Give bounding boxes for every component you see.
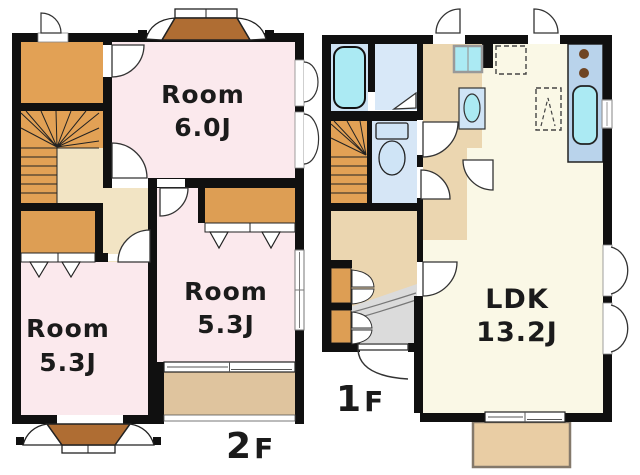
- casement-window-east-1: [611, 247, 628, 294]
- room-left-size: 5.3J: [39, 348, 97, 377]
- shoe-closet-2: [331, 310, 351, 343]
- window-sill: [38, 33, 68, 42]
- floorplan-page: Room 6.0J Room 5.3J Room 5.3J 2F: [0, 0, 640, 475]
- ldk-name: LDK: [485, 284, 549, 315]
- room-6j-name: Room: [161, 80, 245, 109]
- closet-left-room: [21, 211, 95, 253]
- shoe-closet-1: [331, 268, 351, 303]
- balcony-2f: [164, 372, 295, 415]
- bay-roof: [47, 424, 130, 445]
- floor-label-2f: 2F: [226, 426, 273, 467]
- room-middle-name: Room: [184, 277, 268, 306]
- bay-window-bottom: [16, 424, 161, 453]
- bathtub-icon: [334, 47, 365, 108]
- floor-label-1f: 1F: [336, 379, 383, 420]
- stairs-1f-area: [331, 121, 367, 203]
- window-sill: [295, 60, 304, 106]
- closet-middle-room: [205, 186, 295, 223]
- bay-window-top: [138, 9, 274, 40]
- casement-window-east-2: [611, 305, 628, 352]
- entrance-door-leaf: [358, 344, 408, 350]
- stove-burner-icon: [579, 68, 589, 78]
- bay-roof: [162, 18, 250, 40]
- back-door-kitchen: [534, 9, 558, 33]
- window-sill: [295, 112, 304, 168]
- closet-top-left: [21, 42, 103, 103]
- stove-burner-icon: [579, 49, 589, 59]
- toilet-bowl-icon: [379, 141, 405, 175]
- ldk-size: 13.2J: [476, 317, 558, 348]
- floor-2f-plan: Room 6.0J Room 5.3J Room 5.3J 2F: [12, 9, 319, 467]
- entrance-door-swing: [358, 350, 408, 379]
- window-sill: [603, 245, 612, 296]
- room-middle-size: 5.3J: [197, 310, 255, 339]
- floorplan-svg: Room 6.0J Room 5.3J Room 5.3J 2F: [0, 0, 640, 475]
- toilet-tank-icon: [376, 123, 408, 139]
- kitchen-sink-icon: [573, 86, 597, 144]
- casement-window-east-1: [304, 62, 318, 102]
- window-sill: [603, 303, 612, 354]
- casement-window-east-2: [304, 114, 319, 164]
- balcony-railing: [164, 415, 295, 421]
- room-left-name: Room: [26, 314, 110, 343]
- casement-window-top: [41, 13, 61, 33]
- back-door-1: [436, 9, 460, 33]
- stair-landing: [57, 148, 103, 203]
- wood-deck: [473, 422, 570, 467]
- room-6j-size: 6.0J: [174, 113, 232, 142]
- washbasin-bowl-icon: [464, 94, 480, 122]
- floor-1f-plan: LDK 13.2J 1F: [322, 9, 628, 467]
